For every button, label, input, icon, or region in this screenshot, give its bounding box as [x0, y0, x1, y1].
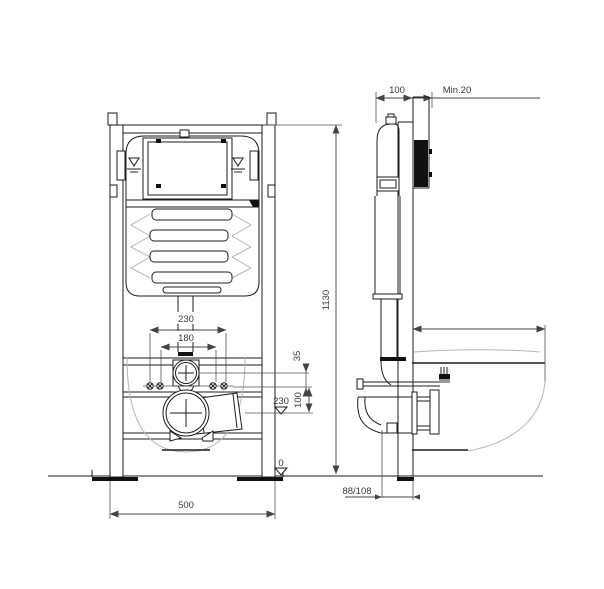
- cistern-profile: [373, 114, 406, 385]
- access-window: [143, 138, 232, 199]
- front-view: 230 180: [92, 113, 342, 519]
- cistern-upper-panel: [117, 130, 259, 207]
- dim-1130-label: 1130: [321, 290, 332, 310]
- water-level-mark-right: [231, 158, 245, 172]
- dim-depth-100-label: 100: [389, 85, 405, 96]
- dim-100-label: 100: [293, 392, 304, 408]
- stud: [157, 383, 163, 389]
- fill-valve-cap: [386, 117, 396, 124]
- side-bracket-left: [117, 151, 125, 180]
- cistern-body: [126, 207, 259, 296]
- water-level-mark-left: [127, 158, 141, 172]
- outlet-elbow: [358, 397, 412, 433]
- dim-35-label: 35: [292, 351, 303, 362]
- datum-triangle-icon: [275, 468, 287, 475]
- dim-88-108-label: 88/108: [342, 486, 371, 497]
- datum-230-label: 230: [273, 396, 289, 407]
- technical-drawing-page: 230 180: [0, 0, 604, 589]
- dim-180-label: 180: [178, 333, 194, 344]
- stud: [210, 383, 216, 389]
- stud: [221, 383, 227, 389]
- mounting-rods: [357, 367, 450, 389]
- dim-width-500: 500: [110, 481, 275, 519]
- dim-depth-100: 100 Min.20: [376, 85, 540, 123]
- side-bracket-right: [250, 151, 258, 180]
- dim-500-label: 500: [178, 500, 194, 511]
- side-view: 100 Min.20: [342, 85, 545, 500]
- rear-foot: [397, 477, 414, 481]
- dim-outlet-88-108: 88/108: [342, 430, 420, 500]
- installation-frame-drawing: 230 180: [0, 0, 604, 589]
- datum-0-label: 0: [278, 458, 283, 469]
- wall-outlet-connector: [412, 390, 439, 434]
- cross-member-section: [380, 357, 406, 361]
- stud: [147, 383, 153, 389]
- dim-min20-label: Min.20: [443, 85, 472, 96]
- datum-0: 0: [275, 458, 287, 475]
- flush-bend: [381, 361, 391, 385]
- flush-plate-panel: [413, 97, 432, 188]
- top-crossbar: [123, 125, 262, 133]
- top-tab: [180, 130, 189, 137]
- dim-230-label: 230: [178, 314, 194, 325]
